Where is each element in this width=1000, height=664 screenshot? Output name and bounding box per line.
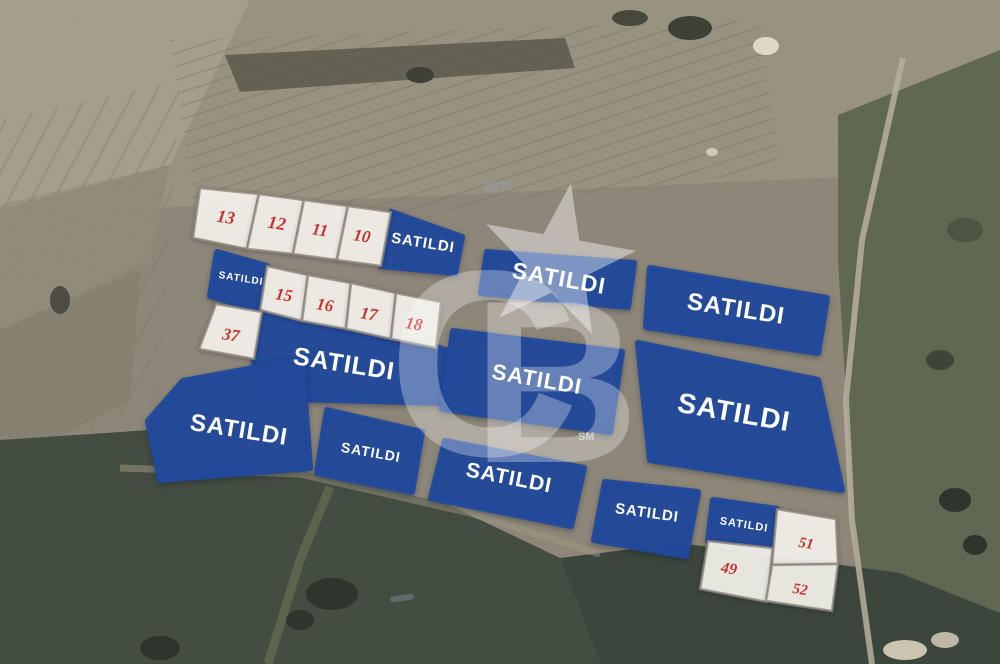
parcel-label-lot-15: 15	[274, 284, 294, 306]
parcel-label-lot-49: 49	[719, 559, 738, 578]
parcel-label-lot-51: 51	[797, 535, 814, 553]
service-mark-label: SM	[578, 431, 595, 443]
parcel-label-lot-52: 52	[791, 581, 809, 599]
parcel-label-lot-16: 16	[315, 294, 335, 316]
faint-map-label: 15/16	[483, 178, 514, 193]
parcel-label-lot-11: 11	[311, 219, 330, 240]
parcel-label-lot-13: 13	[216, 206, 237, 229]
satellite-parcel-map: 15/16 SATILDISATILDISATILDISATILDISATILD…	[0, 0, 1000, 664]
parcel-label-lot-10: 10	[352, 225, 372, 247]
map-canvas: 15/16 SATILDISATILDISATILDISATILDISATILD…	[0, 0, 1000, 664]
parcel-label-lot-12: 12	[267, 212, 288, 235]
